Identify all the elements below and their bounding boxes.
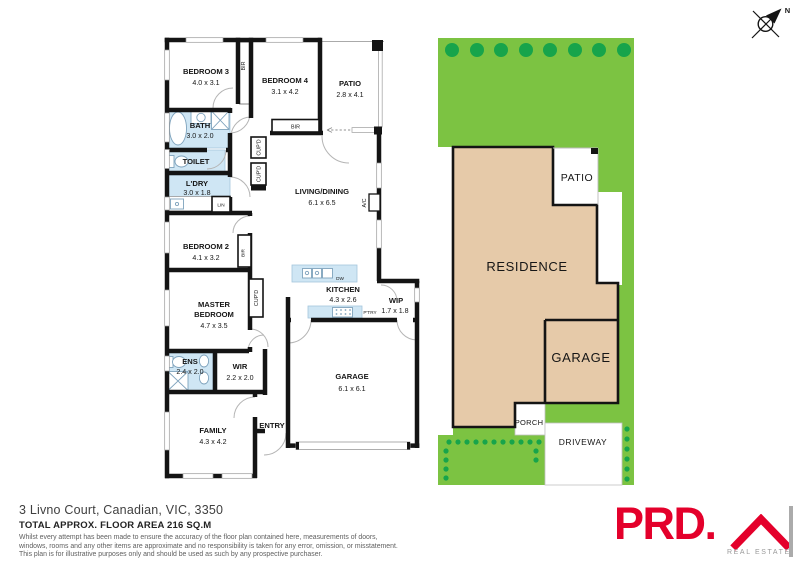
footer: 3 Livno Court, Canadian, VIC, 3350 TOTAL… xyxy=(19,503,579,560)
label-garage: GARAGE xyxy=(335,372,368,381)
ac-unit-icon xyxy=(369,194,380,211)
label-dw: DW xyxy=(336,276,344,281)
site-right-strip xyxy=(598,192,622,285)
label-bir-bed3: BIR xyxy=(241,61,247,70)
site-label-residence: RESIDENCE xyxy=(486,259,567,274)
label-entry: ENTRY xyxy=(259,421,284,430)
dims-patio: 2.8 x 4.1 xyxy=(336,91,363,99)
label-patio: PATIO xyxy=(339,79,361,88)
label-ldry: L'DRY xyxy=(186,179,208,188)
label-cupd-kitchen: CUP'D xyxy=(254,290,260,306)
site-plan: PATIO RESIDENCE GARAGE PORCH DRIVEWAY xyxy=(438,38,634,485)
disclaimer-line-3: This plan is for illustrative purposes o… xyxy=(19,551,579,560)
disclaimer: Whilst every attempt has been made to en… xyxy=(19,534,579,560)
dims-wir: 2.2 x 2.0 xyxy=(226,374,253,382)
label-cupd-hall1: CUP'D xyxy=(257,139,263,155)
logo-divider-bar xyxy=(789,506,793,557)
site-label-porch: PORCH xyxy=(515,418,544,427)
laundry-fixtures-icon xyxy=(168,197,212,212)
label-ac: A/C xyxy=(362,198,368,207)
plan-svg: PATIO RESIDENCE GARAGE PORCH DRIVEWAY xyxy=(0,0,800,500)
label-wip: WIP xyxy=(389,296,403,305)
label-wir: WIR xyxy=(233,362,248,371)
dims-kitchen: 4.3 x 2.6 xyxy=(329,296,356,304)
label-bedroom4: BEDROOM 4 xyxy=(262,76,309,85)
dims-bedroom2: 4.1 x 3.2 xyxy=(192,254,219,262)
disclaimer-line-2: windows, rooms and any other items are a… xyxy=(19,543,579,552)
prd-brand-text: PRD. xyxy=(614,498,716,550)
label-cupd-hall2: CUP'D xyxy=(257,166,263,182)
label-living: LIVING/DINING xyxy=(295,187,349,196)
dims-family: 4.3 x 4.2 xyxy=(199,438,226,446)
compass-north-label: N xyxy=(785,6,790,15)
property-address: 3 Livno Court, Canadian, VIC, 3350 xyxy=(19,503,579,517)
cooktop-icon xyxy=(333,308,353,318)
dims-garage: 6.1 x 6.1 xyxy=(338,385,365,393)
dims-bath: 3.0 x 2.0 xyxy=(186,132,213,140)
label-bir-bed2: BIR xyxy=(241,248,246,256)
label-bath: BATH xyxy=(190,121,211,130)
kitchen-island-fixtures-icon xyxy=(303,269,333,279)
label-ptry: P'TRY xyxy=(363,310,377,315)
floor-area-total: TOTAL APPROX. FLOOR AREA 216 SQ.M xyxy=(19,520,579,531)
floor-plan: BEDROOM 3 4.0 x 3.1 BEDROOM 4 3.1 x 4.2 … xyxy=(165,38,420,479)
floorplan-page: PATIO RESIDENCE GARAGE PORCH DRIVEWAY xyxy=(0,0,800,566)
dims-ldry: 3.0 x 1.8 xyxy=(183,189,210,197)
dims-living: 6.1 x 6.5 xyxy=(308,199,335,207)
disclaimer-line-1: Whilst every attempt has been made to en… xyxy=(19,534,579,543)
prd-roof-icon xyxy=(730,514,792,552)
site-label-driveway: DRIVEWAY xyxy=(559,437,607,447)
prd-tagline: REAL ESTATE xyxy=(727,549,795,556)
dims-bedroom4: 3.1 x 4.2 xyxy=(271,88,298,96)
compass-icon: N xyxy=(752,6,790,38)
site-label-garage: GARAGE xyxy=(551,350,610,365)
label-bedroom3: BEDROOM 3 xyxy=(183,67,229,76)
site-left-strip xyxy=(438,147,453,435)
prd-logo: PRD. REAL ESTATE xyxy=(606,506,800,562)
site-driveway-area xyxy=(545,423,622,485)
label-kitchen: KITCHEN xyxy=(326,285,360,294)
label-family: FAMILY xyxy=(199,426,226,435)
label-toilet: TOILET xyxy=(183,157,210,166)
dims-master: 4.7 x 3.5 xyxy=(200,322,227,330)
dims-ens: 2.4 x 2.0 xyxy=(176,368,203,376)
dims-wip: 1.7 x 1.8 xyxy=(381,307,408,315)
label-lin: LIN xyxy=(217,203,224,208)
label-bir-bed4: BIR xyxy=(291,125,300,131)
label-bedroom2: BEDROOM 2 xyxy=(183,242,229,251)
label-ens: ENS xyxy=(182,357,198,366)
label-master-2: BEDROOM xyxy=(194,310,234,319)
site-label-patio: PATIO xyxy=(561,172,593,184)
dims-bedroom3: 4.0 x 3.1 xyxy=(192,79,219,87)
label-master-1: MASTER xyxy=(198,300,231,309)
garage-door xyxy=(296,442,410,450)
